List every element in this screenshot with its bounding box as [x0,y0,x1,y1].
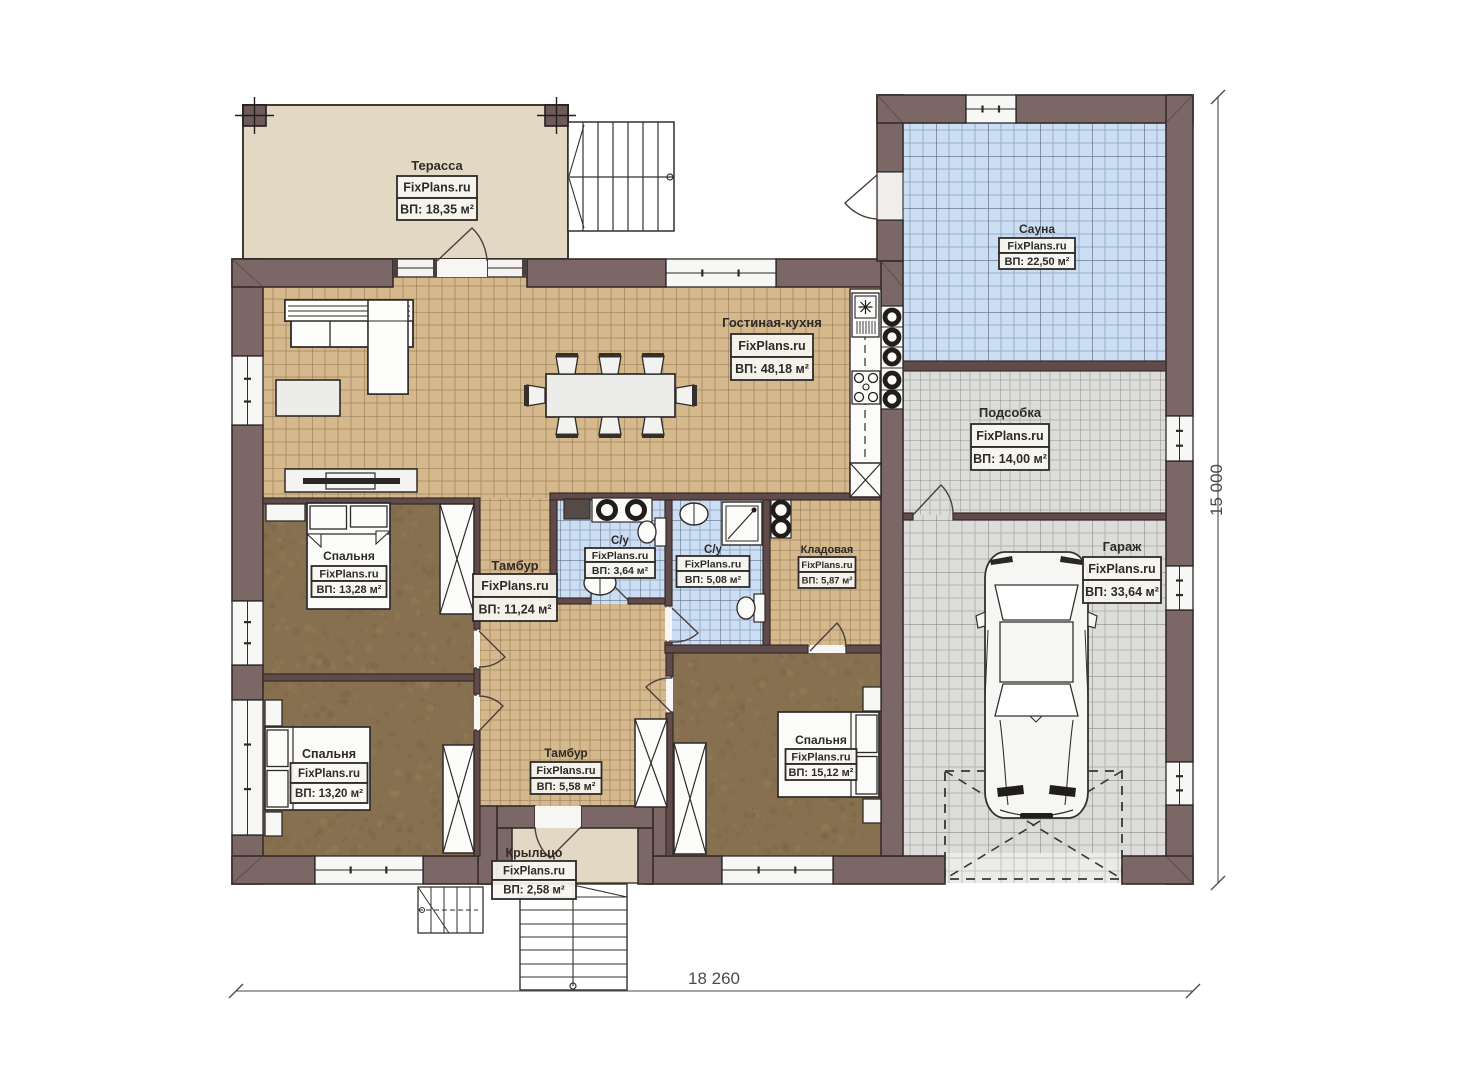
svg-text:Тамбур: Тамбур [491,558,538,573]
svg-text:FixPlans.ru: FixPlans.ru [738,339,805,353]
svg-text:ВП: 11,24 м²: ВП: 11,24 м² [478,603,551,617]
svg-text:FixPlans.ru: FixPlans.ru [536,765,595,777]
svg-text:Гараж: Гараж [1103,539,1143,554]
svg-text:ВП: 3,64 м²: ВП: 3,64 м² [592,565,649,577]
svg-text:ВП: 33,64 м²: ВП: 33,64 м² [1085,585,1159,599]
svg-text:С/у: С/у [704,544,723,556]
svg-text:Гостиная-кухня: Гостиная-кухня [722,315,822,330]
svg-text:FixPlans.ru: FixPlans.ru [298,768,360,780]
svg-text:FixPlans.ru: FixPlans.ru [319,568,378,580]
svg-text:ВП: 18,35 м²: ВП: 18,35 м² [400,203,474,217]
svg-text:FixPlans.ru: FixPlans.ru [685,558,742,570]
svg-text:Спальня: Спальня [795,733,847,747]
svg-text:FixPlans.ru: FixPlans.ru [791,751,850,763]
svg-text:С/у: С/у [611,535,630,547]
svg-text:15 000: 15 000 [1207,464,1226,516]
svg-text:FixPlans.ru: FixPlans.ru [503,866,565,878]
svg-text:Крыльцо: Крыльцо [506,846,563,860]
svg-text:FixPlans.ru: FixPlans.ru [481,579,548,593]
svg-text:ВП: 14,00 м²: ВП: 14,00 м² [973,452,1047,466]
svg-text:ВП: 13,28 м²: ВП: 13,28 м² [317,584,382,596]
svg-text:FixPlans.ru: FixPlans.ru [976,429,1043,443]
svg-text:ВП: 13,20 м²: ВП: 13,20 м² [295,788,363,800]
svg-text:Кладовая: Кладовая [801,544,854,556]
svg-text:Спальня: Спальня [323,549,375,563]
svg-text:FixPlans.ru: FixPlans.ru [403,181,470,195]
svg-text:FixPlans.ru: FixPlans.ru [1007,240,1066,252]
svg-text:Подсобка: Подсобка [979,405,1042,420]
svg-text:ВП: 22,50 м²: ВП: 22,50 м² [1005,256,1070,268]
svg-text:ВП: 5,08 м²: ВП: 5,08 м² [685,574,742,586]
svg-text:18 260: 18 260 [688,969,740,988]
svg-text:ВП: 5,87 м²: ВП: 5,87 м² [802,575,853,586]
svg-text:ВП: 48,18 м²: ВП: 48,18 м² [735,362,809,376]
svg-text:Спальня: Спальня [302,747,356,761]
svg-text:ВП: 15,12 м²: ВП: 15,12 м² [789,767,854,779]
svg-text:ВП: 5,58 м²: ВП: 5,58 м² [537,781,596,793]
svg-text:Сауна: Сауна [1019,222,1055,236]
svg-text:FixPlans.ru: FixPlans.ru [592,550,649,562]
svg-text:FixPlans.ru: FixPlans.ru [1088,562,1155,576]
svg-text:ВП: 2,58 м²: ВП: 2,58 м² [503,885,565,897]
svg-text:Терасса: Терасса [411,158,463,173]
svg-text:Тамбур: Тамбур [544,746,588,760]
svg-text:FixPlans.ru: FixPlans.ru [801,560,852,571]
